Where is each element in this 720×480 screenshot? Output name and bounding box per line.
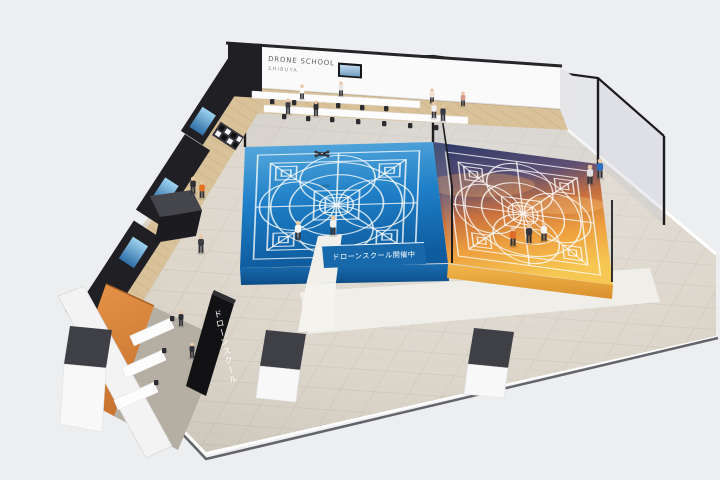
- sunset-court: [425, 142, 613, 299]
- tv-screen: [338, 63, 362, 79]
- scene-svg: ドローンスクール開催中 DRONE SCHOOL SHIBUYA: [0, 0, 720, 480]
- court-banner: ドローンスクール開催中: [322, 243, 426, 269]
- facility-render: ドローンスクール開催中 DRONE SCHOOL SHIBUYA: [0, 0, 720, 480]
